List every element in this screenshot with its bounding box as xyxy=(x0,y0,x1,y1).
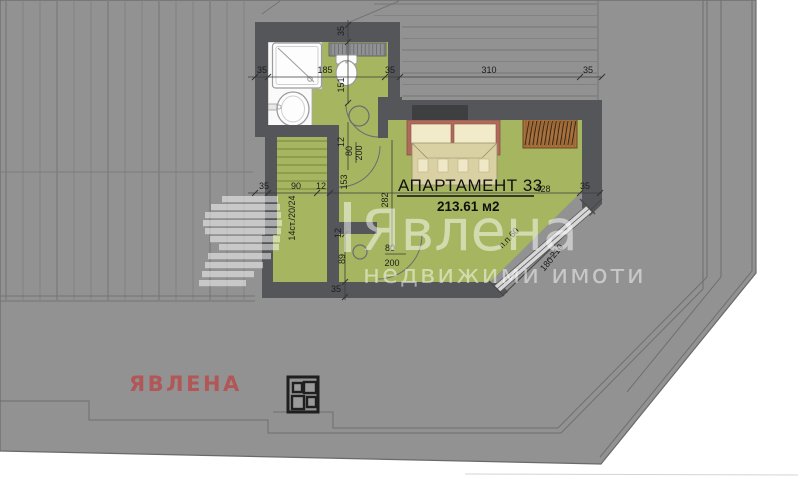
watermark-logo-bar xyxy=(203,220,282,226)
dimension-label: 89 xyxy=(337,254,347,264)
dimension-label: 12 xyxy=(316,181,326,191)
watermark-logo-bar xyxy=(222,196,278,202)
watermark-logo-bar xyxy=(219,244,279,250)
watermark-brand: Явлена xyxy=(361,198,578,264)
watermark-logo-bar xyxy=(205,212,281,218)
dimension-label: 35 xyxy=(580,181,590,191)
dimension-label: 12 xyxy=(333,228,343,238)
apartment-title: АПАРТАМЕНТ 33 xyxy=(398,176,543,195)
watermark-logo-bar xyxy=(205,262,263,268)
dimension-label: 185 xyxy=(317,65,332,75)
dimension-label: 151 xyxy=(336,77,346,92)
watermark-logo-bar xyxy=(211,204,280,210)
watermark-logo-bar xyxy=(205,228,281,234)
chimney-block xyxy=(412,105,468,120)
watermark-tagline: недвижими имоти xyxy=(363,260,646,290)
dimension-label: 14ст./20/24 xyxy=(287,195,297,240)
dimension-label: 35 xyxy=(259,181,269,191)
dimension-label: 12 xyxy=(336,137,346,147)
dimension-label: 35 xyxy=(583,65,593,75)
watermark-logo-bar xyxy=(199,280,246,286)
dimension-label: 90 xyxy=(291,181,301,191)
dimension-label: 35 xyxy=(336,26,346,36)
watermark-logo-bar xyxy=(210,236,280,242)
shower xyxy=(273,43,322,88)
dimension-label: 153 xyxy=(339,174,349,189)
watermark-logo-bar xyxy=(208,253,271,259)
dimension-label: 310 xyxy=(481,65,496,75)
watermark-divider xyxy=(344,202,351,252)
watermark-logo-bar xyxy=(202,271,254,277)
dimension-label: 200 xyxy=(354,145,364,160)
dimension-label: 80 xyxy=(344,146,354,156)
floor-plan-page: 3518535310353515112802003590121532824283… xyxy=(0,0,800,479)
dimension-label: 35 xyxy=(331,284,341,294)
dimension-label: 35 xyxy=(257,65,267,75)
page-bottom-line xyxy=(465,474,798,475)
corner-brand-text: ЯВЛЕНА xyxy=(129,372,242,396)
floor-plan-drawing: 3518535310353515112802003590121532824283… xyxy=(0,0,800,479)
dimension-label: 35 xyxy=(385,65,395,75)
